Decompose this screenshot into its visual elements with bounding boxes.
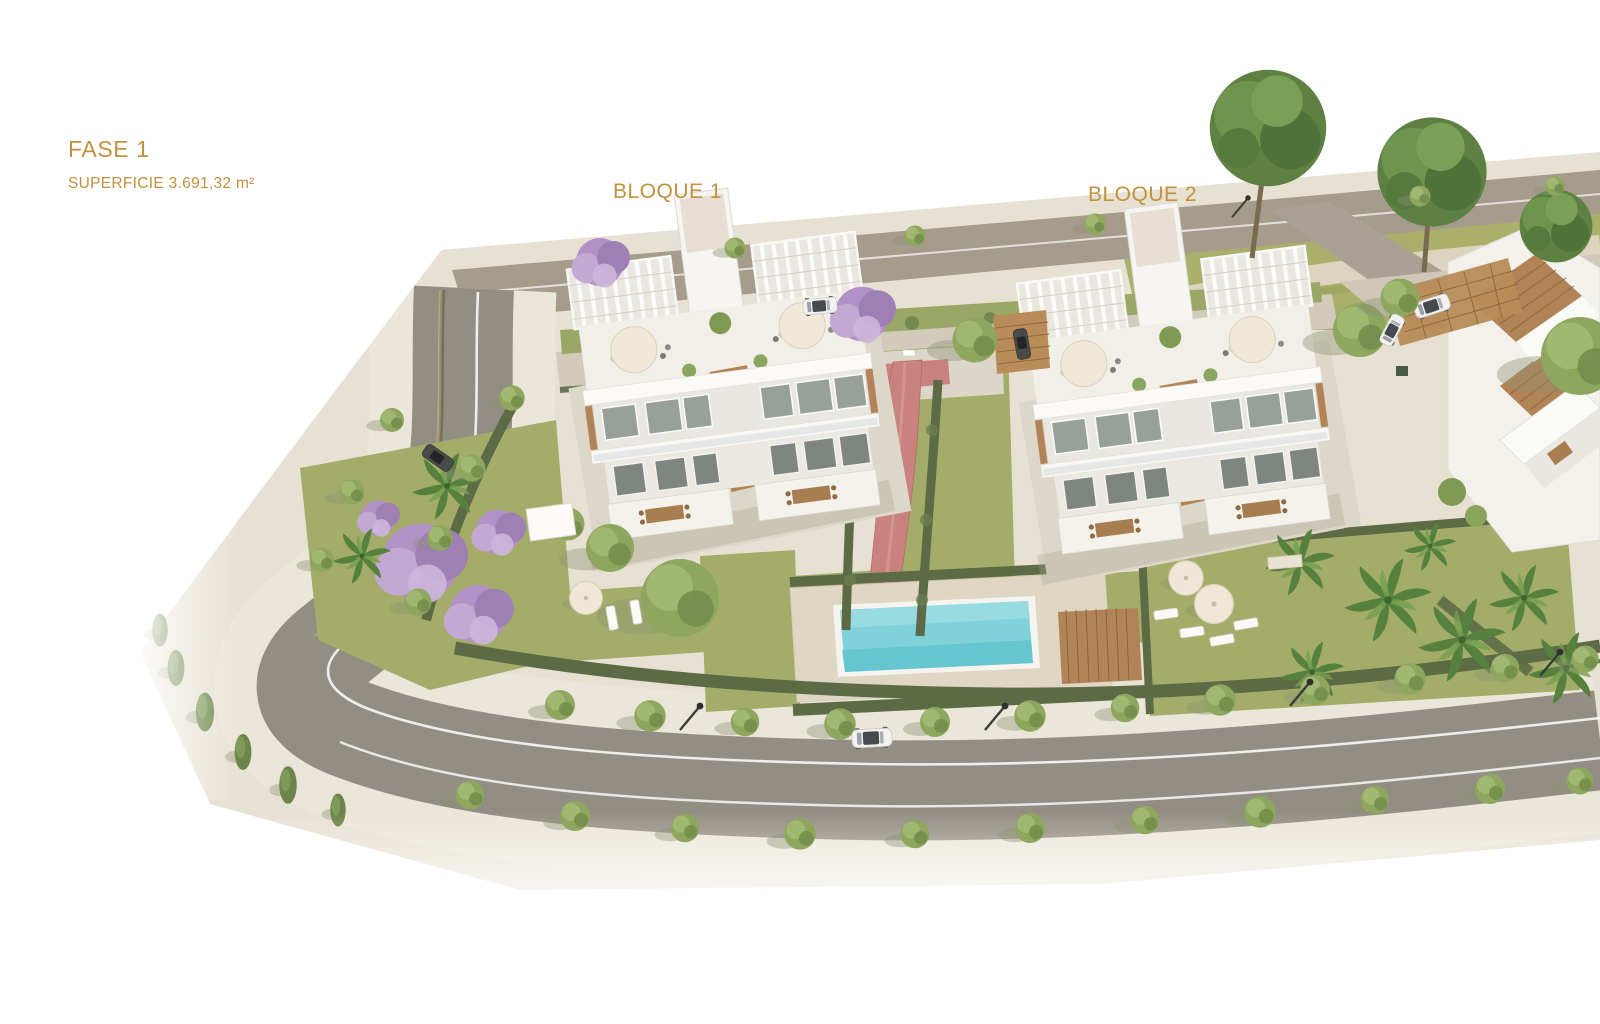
parked-white-car <box>802 296 837 317</box>
trellis-carport <box>993 310 1050 374</box>
bloque1-label: BLOQUE 1 <box>613 180 722 204</box>
phase-area-label: SUPERFICIE 3.691,32 m² <box>68 175 255 193</box>
wood-sun-deck <box>1058 608 1142 684</box>
bloque2-label: BLOQUE 2 <box>1088 183 1197 207</box>
site-render <box>0 0 1600 1024</box>
architectural-render-page: FASE 1 SUPERFICIE 3.691,32 m² BLOQUE 1 B… <box>0 0 1600 1024</box>
shade-sail <box>526 503 576 541</box>
white-car-on-road <box>851 726 892 749</box>
phase-title: FASE 1 <box>68 136 150 163</box>
left-fade <box>110 240 240 800</box>
